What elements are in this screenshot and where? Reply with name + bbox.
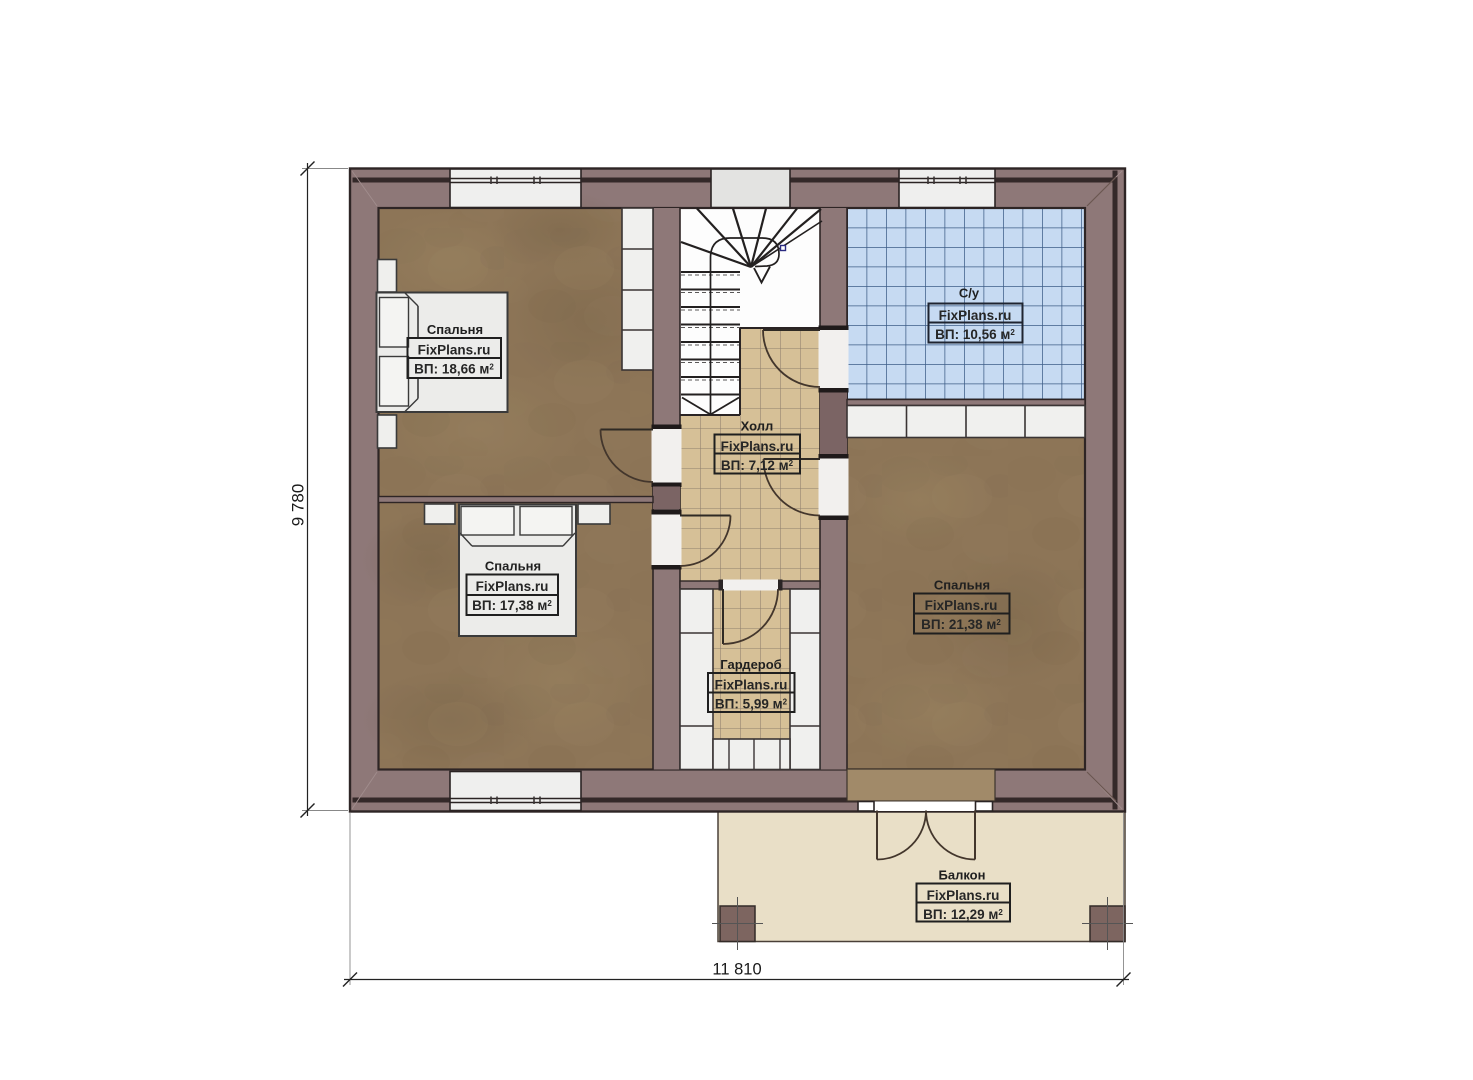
svg-text:11 810: 11 810 — [712, 961, 761, 979]
svg-text:ВП: 5,99 м2: ВП: 5,99 м2 — [715, 697, 788, 712]
svg-text:ВП: 12,29 м2: ВП: 12,29 м2 — [923, 907, 1003, 922]
svg-text:FixPlans.ru: FixPlans.ru — [721, 439, 794, 454]
svg-text:ВП: 17,38 м2: ВП: 17,38 м2 — [472, 598, 552, 613]
svg-text:FixPlans.ru: FixPlans.ru — [927, 888, 1000, 903]
svg-text:ВП: 7,12 м2: ВП: 7,12 м2 — [721, 458, 794, 473]
svg-text:Гардероб: Гардероб — [720, 657, 781, 672]
svg-text:ВП: 18,66 м2: ВП: 18,66 м2 — [414, 362, 494, 377]
svg-text:С/у: С/у — [959, 286, 980, 301]
svg-text:FixPlans.ru: FixPlans.ru — [476, 579, 549, 594]
svg-text:Холл: Холл — [741, 419, 774, 434]
svg-text:Спальня: Спальня — [427, 322, 483, 337]
svg-text:FixPlans.ru: FixPlans.ru — [925, 598, 998, 613]
svg-text:Спальня: Спальня — [485, 559, 541, 574]
svg-text:ВП: 21,38 м2: ВП: 21,38 м2 — [921, 617, 1001, 632]
svg-text:FixPlans.ru: FixPlans.ru — [939, 308, 1012, 323]
svg-text:9 780: 9 780 — [289, 484, 308, 527]
svg-text:FixPlans.ru: FixPlans.ru — [418, 343, 491, 358]
svg-text:Балкон: Балкон — [939, 868, 986, 883]
svg-text:FixPlans.ru: FixPlans.ru — [715, 678, 788, 693]
svg-text:Спальня: Спальня — [934, 578, 990, 593]
svg-text:ВП: 10,56 м2: ВП: 10,56 м2 — [935, 327, 1015, 342]
